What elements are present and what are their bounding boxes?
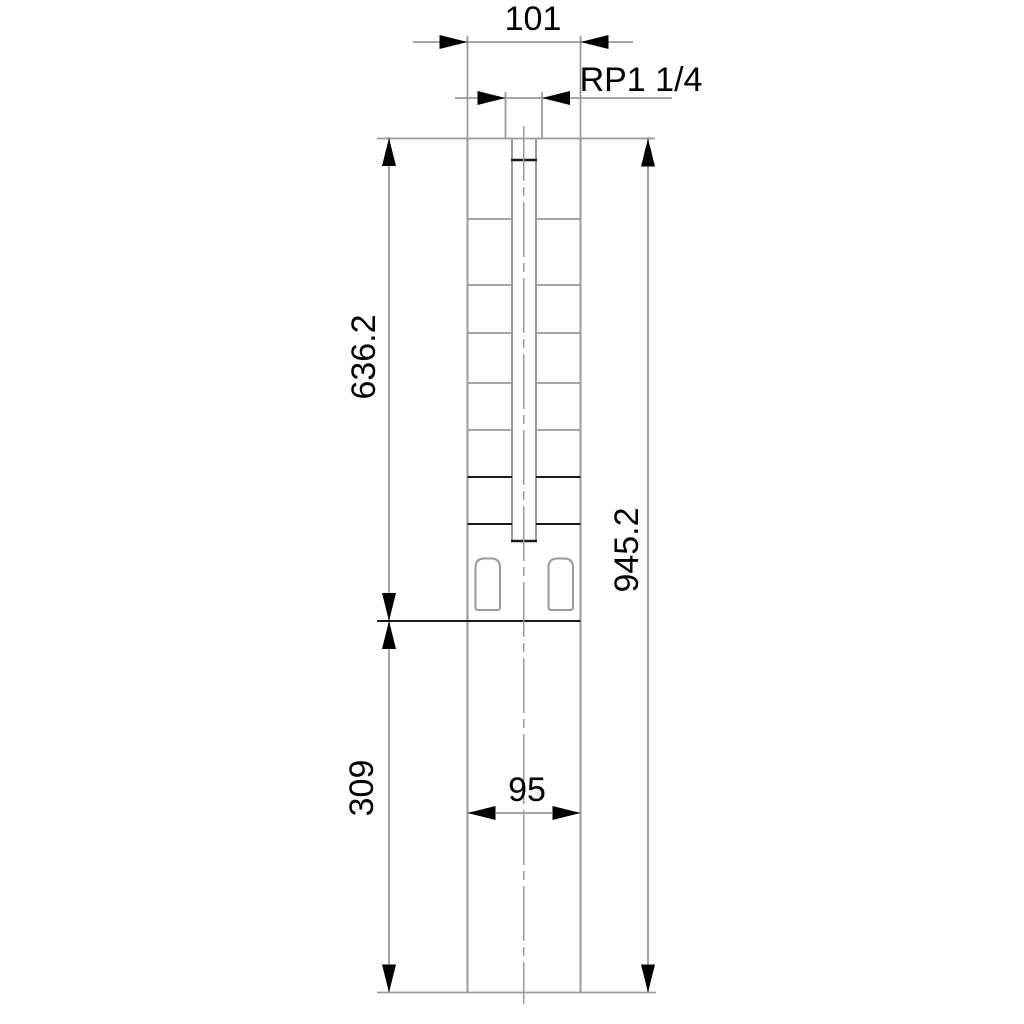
arrow-down-icon <box>382 965 396 993</box>
arrow-up-icon <box>641 139 655 167</box>
arrow-right-icon <box>440 35 468 49</box>
arrow-left-icon <box>581 35 609 49</box>
outlet-width-dimension-label: 101 <box>505 2 562 36</box>
arrow-right-icon <box>553 806 581 820</box>
arrow-left-icon <box>542 91 570 105</box>
motor-width-dimension-label: 95 <box>508 773 546 807</box>
arrow-down-icon <box>382 593 396 621</box>
motor-section-length-dimension-label: 309 <box>345 760 379 817</box>
arrow-left-icon <box>468 806 496 820</box>
arrow-up-icon <box>382 621 396 649</box>
arrow-down-icon <box>641 965 655 993</box>
arrow-up-icon <box>382 138 396 166</box>
outlet-thread-dimension-label: RP1 1/4 <box>580 63 703 97</box>
pump-outline-drawing <box>0 0 1024 1024</box>
pump-section-length-dimension-label: 636.2 <box>347 314 381 399</box>
drawing-canvas: 101 RP1 1/4 636.2 945.2 309 95 <box>0 0 1024 1024</box>
arrow-right-icon <box>478 91 506 105</box>
total-length-dimension-label: 945.2 <box>610 507 644 592</box>
